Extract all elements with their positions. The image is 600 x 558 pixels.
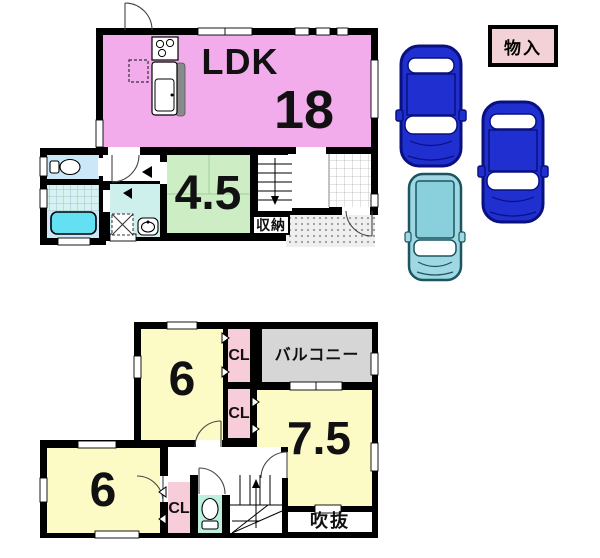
hall-2f-c — [168, 475, 190, 482]
porch — [286, 215, 375, 247]
floorplan-page: LDK 18 4.5 収納 6 6 7.5 CL CL CL バルコニー 吹抜 … — [0, 0, 600, 558]
hall-2f — [168, 447, 281, 475]
balcony-label: バルコニー — [275, 348, 360, 364]
car-sedan-1 — [396, 46, 466, 166]
closet-top-label: CL — [228, 348, 249, 364]
bathroom-tile — [47, 185, 99, 211]
genkan-tile — [329, 154, 371, 207]
ldk-label: LDK — [202, 44, 279, 80]
car-sedan-2 — [478, 102, 548, 222]
hall-entrance — [288, 154, 329, 208]
toilet-icon-1f — [50, 160, 80, 175]
kitchen-stove-icon — [152, 37, 178, 60]
bathtub-icon — [51, 212, 96, 234]
car-hatchback — [405, 174, 465, 280]
void-label: 吹抜 — [310, 512, 350, 530]
ldk-size-label: 18 — [274, 83, 334, 137]
storage-box-label: 物入 — [504, 34, 542, 59]
toilet-icon-2f — [202, 499, 218, 530]
sink-icon — [138, 218, 158, 235]
storage-box: 物入 — [488, 25, 558, 67]
room6-bottom-label: 6 — [90, 467, 117, 515]
washing-machine-icon — [112, 214, 133, 235]
washitsu-size-label: 4.5 — [175, 170, 242, 218]
storage-1f-label: 収納 — [252, 215, 290, 235]
room6-top-label: 6 — [169, 356, 196, 404]
kitchen-counter-icon — [152, 62, 185, 116]
room75-label: 7.5 — [287, 415, 351, 461]
closet-mid-label: CL — [228, 406, 249, 422]
closet-bottom-label: CL — [168, 501, 189, 517]
